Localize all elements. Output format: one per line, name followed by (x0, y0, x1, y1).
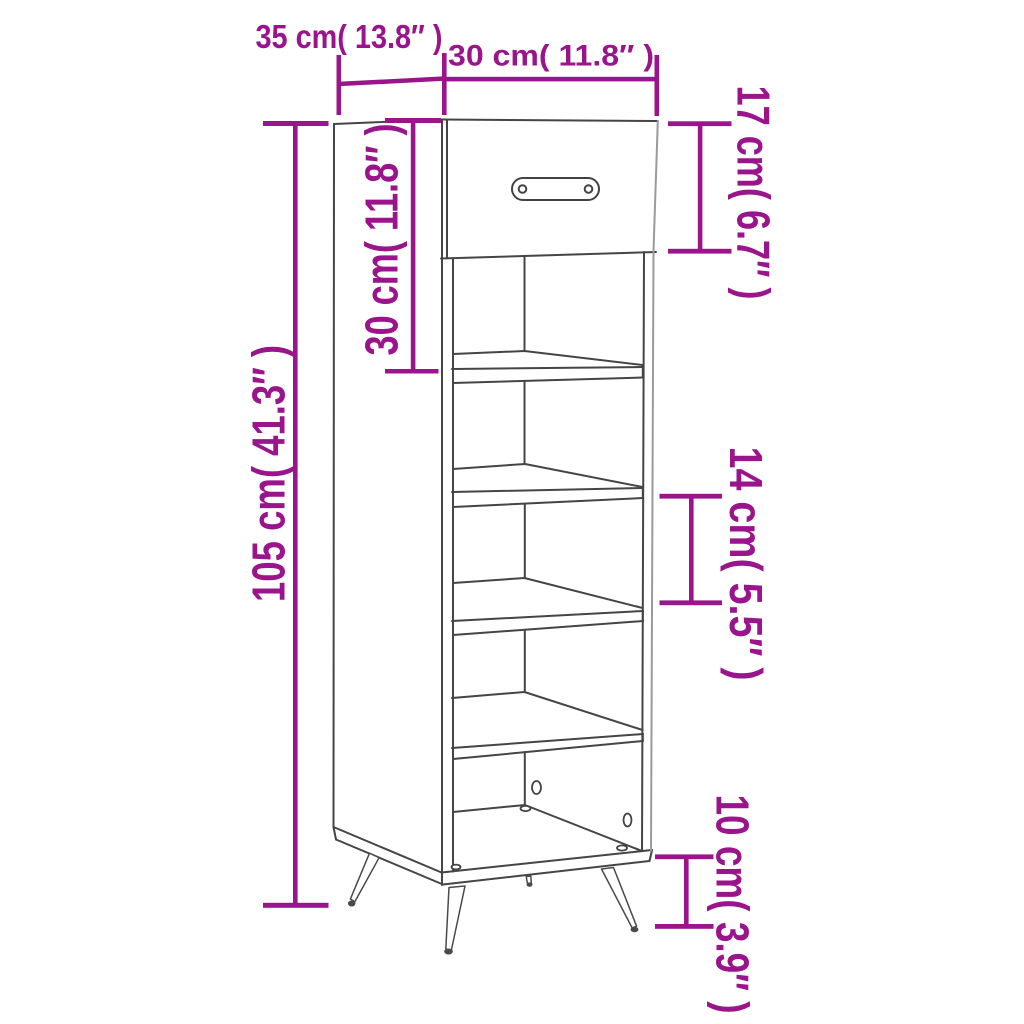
svg-text:35 cm( 13.8″ ): 35 cm( 13.8″ ) (256, 18, 443, 55)
svg-text:30 cm( 11.8″ ): 30 cm( 11.8″ ) (356, 124, 408, 356)
svg-text:10 cm( 3.9″ ): 10 cm( 3.9″ ) (707, 795, 759, 1014)
svg-text:30 cm( 11.8″ ): 30 cm( 11.8″ ) (448, 40, 654, 73)
svg-text:105 cm( 41.3″ ): 105 cm( 41.3″ ) (243, 345, 295, 602)
svg-text:17 cm( 6.7″ ): 17 cm( 6.7″ ) (728, 86, 780, 300)
svg-text:14 cm( 5.5″ ): 14 cm( 5.5″ ) (720, 447, 772, 681)
